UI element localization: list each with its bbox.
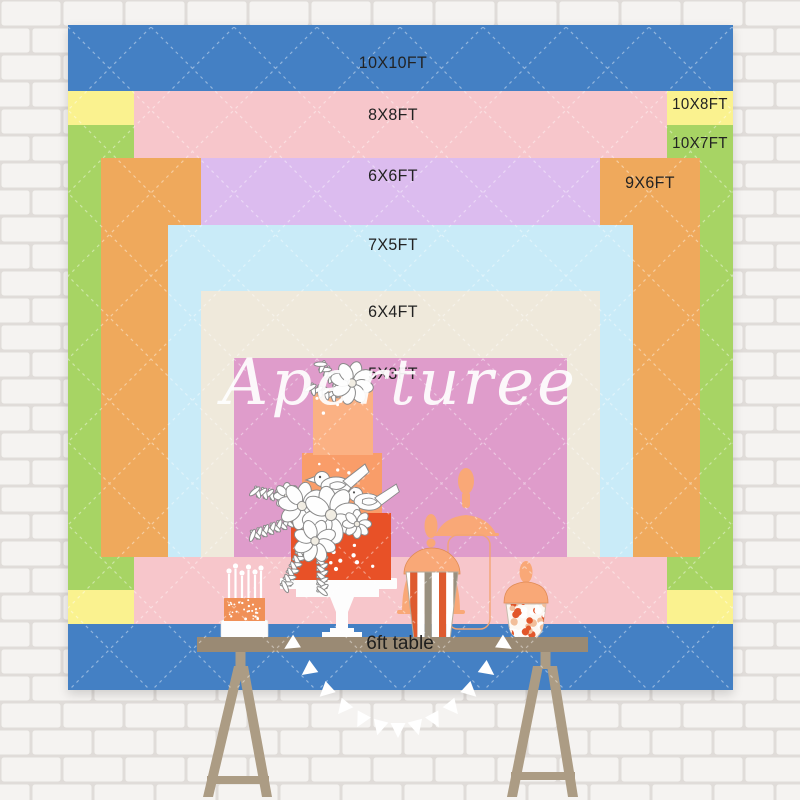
- candles: [226, 563, 263, 599]
- pedestal-neck: [330, 597, 354, 612]
- jar-finial-silhouette: [458, 468, 474, 494]
- jar-lid-silhouette: [436, 515, 496, 534]
- candle-cake: [221, 563, 268, 638]
- bird-eye: [319, 476, 321, 478]
- jar-stem-silhouette: [462, 492, 470, 508]
- scene: 10X10FT 8X8FT 6X6FT 7X5FT 6X4FT 5X3FT 10…: [0, 0, 800, 800]
- table-legs: [203, 652, 578, 797]
- candle-cake-base: [221, 620, 268, 638]
- cloche-knob-silhouette: [425, 514, 438, 538]
- quilt-pattern: [0, 27, 800, 690]
- party-illustration: [0, 0, 800, 800]
- popcorn-dome: [404, 548, 460, 574]
- table-leg-crossbar: [207, 776, 269, 784]
- popcorn-stripes: [403, 570, 461, 642]
- cake-plate-step: [296, 589, 379, 597]
- table-leg-crossbar: [511, 772, 575, 780]
- popcorn-box: [403, 548, 461, 642]
- dessert-table: [197, 637, 588, 797]
- pedestal-stem: [336, 611, 348, 629]
- table-size-label: 6ft table: [300, 633, 500, 655]
- cloche-knob-ball: [427, 539, 436, 548]
- candy-jar-lid: [504, 582, 548, 603]
- candy-jar: [504, 561, 549, 640]
